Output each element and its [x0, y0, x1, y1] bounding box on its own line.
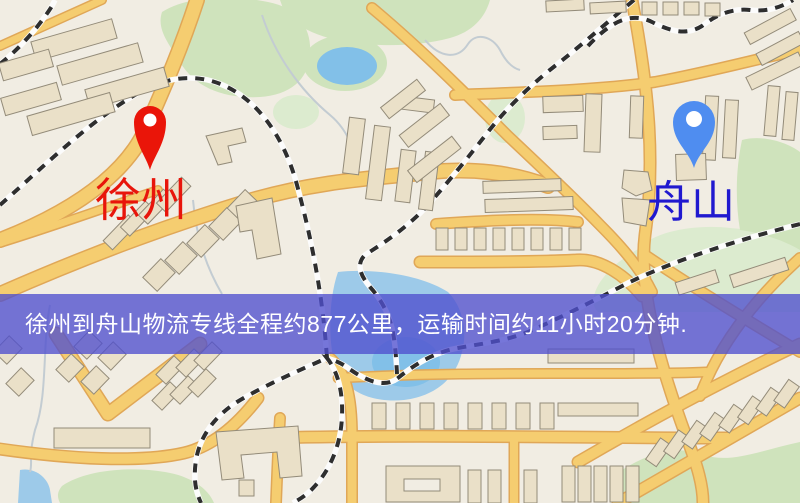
origin-pin-icon[interactable] [134, 106, 166, 170]
map-canvas[interactable] [0, 0, 800, 503]
route-info-text: 徐州到舟山物流专线全程约877公里，运输时间约11小时20分钟. [25, 311, 687, 337]
origin-city-label: 徐州 [86, 178, 196, 224]
map-view: 徐州 舟山 徐州到舟山物流专线全程约877公里，运输时间约11小时20分钟. [0, 0, 800, 503]
destination-city-label: 舟山 [636, 181, 746, 225]
route-info-banner: 徐州到舟山物流专线全程约877公里，运输时间约11小时20分钟. [0, 294, 800, 354]
